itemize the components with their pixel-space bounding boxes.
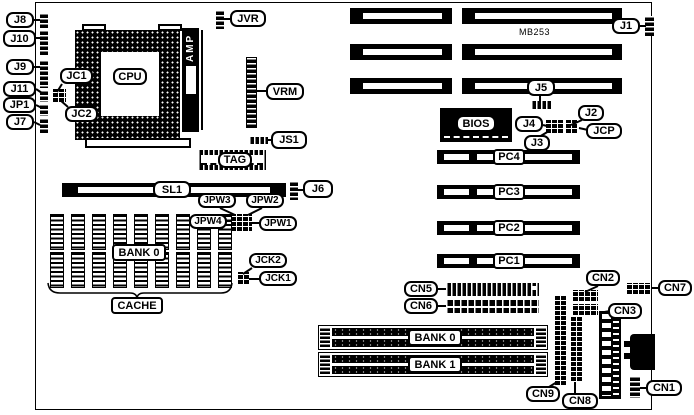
label-pc3: PC3 xyxy=(493,184,525,200)
label-jpw4: JPW4 xyxy=(189,214,227,229)
label-cache: CACHE xyxy=(111,297,163,314)
label-jc2: JC2 xyxy=(65,106,98,122)
label-cn2: CN2 xyxy=(586,270,620,286)
label-jpw3: JPW3 xyxy=(198,193,236,208)
motherboard-diagram: J8 J10 J9 J11 JP1 J7 CPU AMP JC1 JC2 JVR… xyxy=(0,0,694,415)
label-cn1: CN1 xyxy=(646,380,682,396)
label-sl1: SL1 xyxy=(153,181,191,198)
leader-lines xyxy=(0,0,694,415)
label-jcp: JCP xyxy=(586,123,622,139)
label-cn6: CN6 xyxy=(404,298,438,314)
label-j10: J10 xyxy=(3,30,36,47)
label-cn3: CN3 xyxy=(608,303,642,319)
label-cpu: CPU xyxy=(113,68,147,85)
label-jck1: JCK1 xyxy=(259,271,297,286)
label-jc1: JC1 xyxy=(60,68,93,84)
label-j5: J5 xyxy=(527,79,555,96)
label-js1: JS1 xyxy=(271,131,307,149)
label-simm-bank0: BANK 0 xyxy=(408,329,462,346)
label-cache-bank0: BANK 0 xyxy=(112,244,166,261)
label-j8: J8 xyxy=(6,12,34,28)
label-j11: J11 xyxy=(3,81,36,97)
label-cn9: CN9 xyxy=(526,386,560,402)
label-pc1: PC1 xyxy=(493,253,525,269)
label-simm-bank1: BANK 1 xyxy=(408,356,462,373)
label-jpw1: JPW1 xyxy=(259,216,297,231)
label-jvr: JVR xyxy=(230,10,266,27)
label-j1: J1 xyxy=(612,18,640,34)
label-j6: J6 xyxy=(303,180,333,198)
label-j3: J3 xyxy=(524,135,550,151)
label-j2: J2 xyxy=(578,105,604,121)
label-cn7: CN7 xyxy=(658,280,692,296)
label-jpw2: JPW2 xyxy=(246,193,284,208)
label-cn8: CN8 xyxy=(562,393,598,409)
label-pc2: PC2 xyxy=(493,220,525,236)
label-vrm: VRM xyxy=(266,83,304,100)
label-jp1: JP1 xyxy=(3,97,36,113)
label-j9: J9 xyxy=(6,59,34,75)
label-j4: J4 xyxy=(515,116,543,132)
label-j7: J7 xyxy=(6,114,34,130)
label-pc4: PC4 xyxy=(493,149,525,165)
label-jck2: JCK2 xyxy=(249,253,287,268)
label-cn5: CN5 xyxy=(404,281,438,297)
label-tag: TAG xyxy=(218,152,252,168)
label-bios: BIOS xyxy=(456,115,496,132)
